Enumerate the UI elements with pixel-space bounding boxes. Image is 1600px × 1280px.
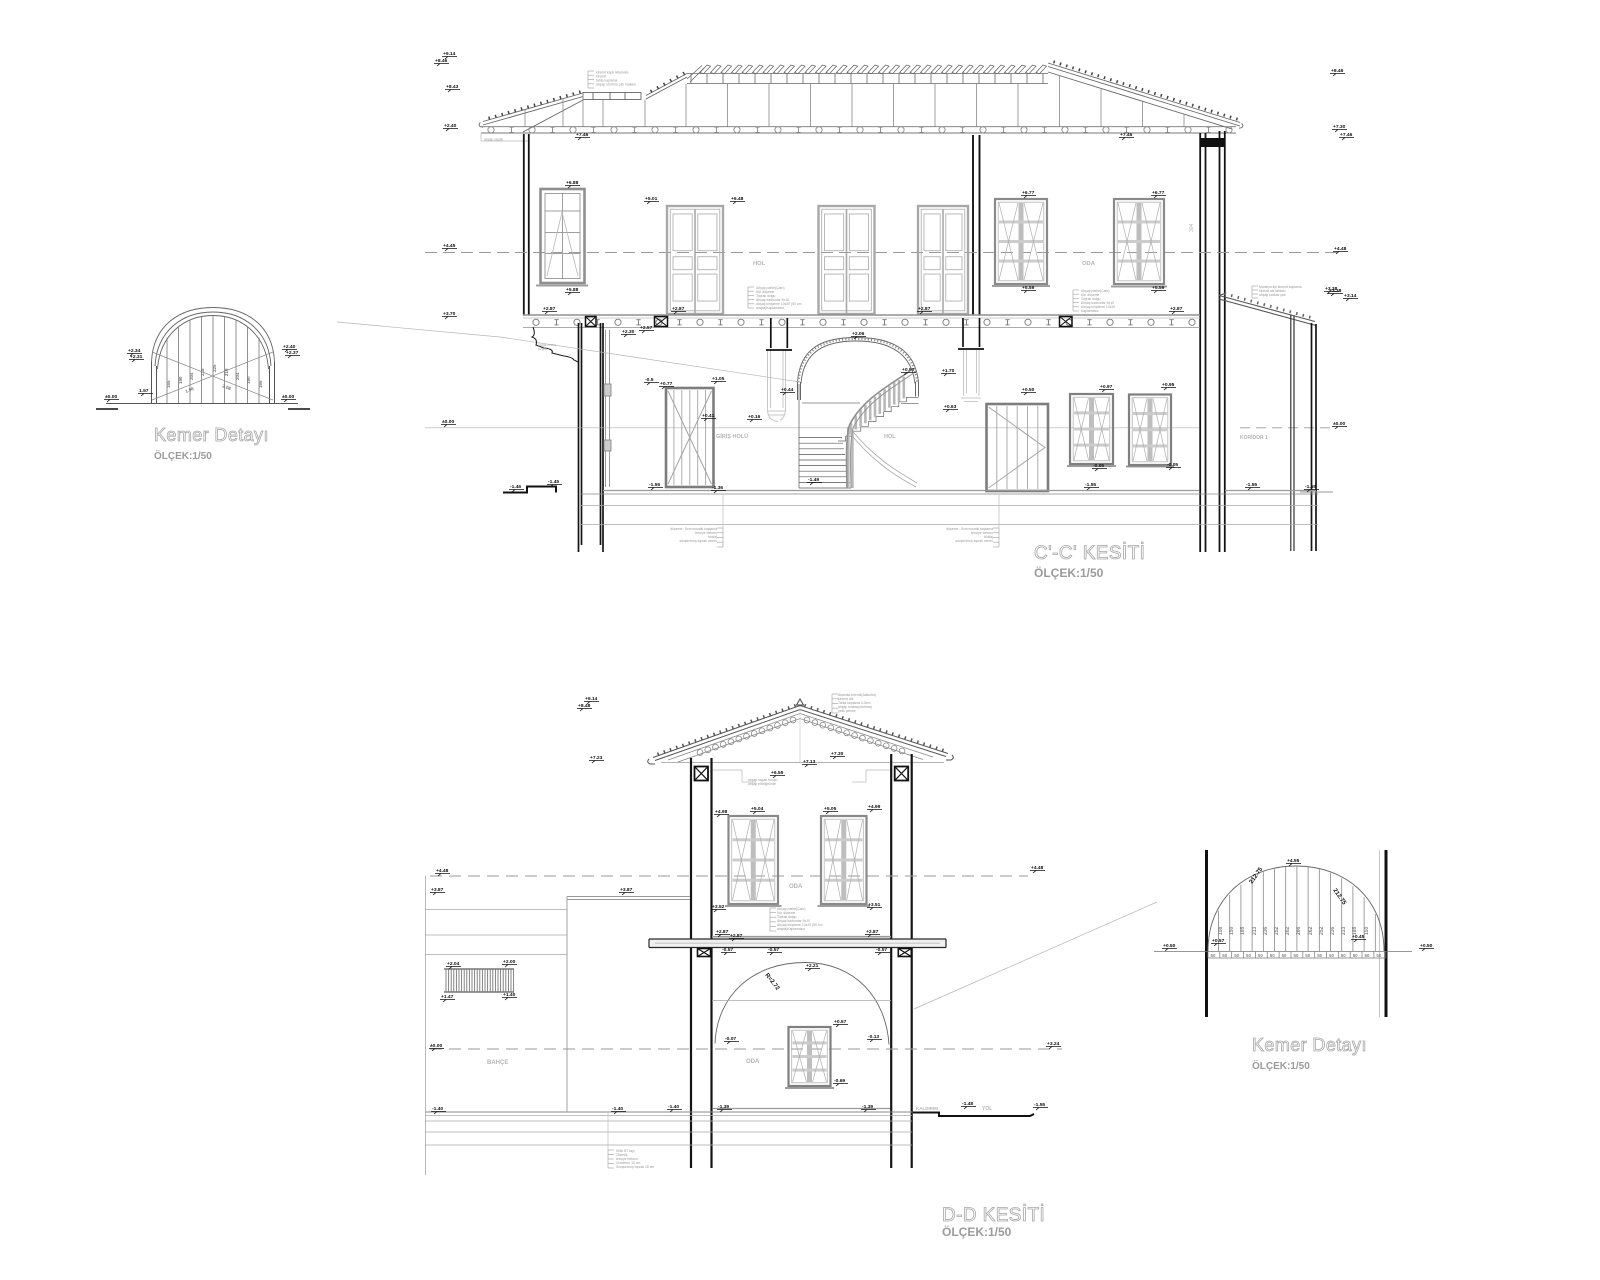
svg-text:108: 108 [1218,926,1224,935]
svg-text:185: 185 [1240,926,1246,935]
svg-text:165: 165 [166,380,171,388]
svg-text:sıkıştırılmış toprak zemin: sıkıştırılmış toprak zemin [680,539,718,543]
svg-text:50: 50 [1329,953,1334,958]
svg-text:190: 190 [246,376,251,384]
svg-text:190: 190 [178,376,183,384]
svg-text:252: 252 [1274,926,1280,935]
svg-text:262: 262 [1308,926,1314,935]
svg-text:ahşap oturtma çatı makası: ahşap oturtma çatı makası [596,83,636,87]
svg-text:50: 50 [1294,953,1299,958]
svg-text:50: 50 [1365,953,1370,958]
svg-text:213: 213 [1252,926,1258,935]
svg-text:204: 204 [189,372,194,380]
svg-text:Kemer Detayı: Kemer Detayı [154,425,269,445]
svg-text:165: 165 [258,380,263,388]
svg-text:50: 50 [1317,953,1322,958]
svg-text:KORİDOR 1: KORİDOR 1 [1240,434,1268,441]
svg-text:218: 218 [200,368,205,376]
svg-text:236: 236 [1263,926,1269,935]
svg-text:D-D KESİTİ: D-D KESİTİ [942,1205,1045,1226]
svg-text:ÖLÇEK:1/50: ÖLÇEK:1/50 [1034,565,1104,580]
svg-text:252: 252 [1319,926,1325,935]
svg-text:212.75: 212.75 [1331,888,1347,907]
svg-text:185: 185 [1352,926,1358,935]
svg-text:50: 50 [1222,953,1227,958]
svg-text:218: 218 [224,368,229,376]
svg-text:213: 213 [1341,926,1347,935]
svg-text:HOL: HOL [753,261,766,267]
svg-text:50: 50 [1305,953,1310,958]
svg-text:KALDIRIM: KALDIRIM [916,1106,938,1111]
svg-text:ahşap saçak: ahşap saçak [484,137,503,141]
svg-text:ODA: ODA [746,1059,760,1065]
svg-text:50: 50 [1211,953,1216,958]
svg-text:204: 204 [235,372,240,380]
svg-text:50: 50 [1234,953,1239,958]
svg-text:çizgisi: çizgisi [538,347,547,351]
svg-text:266: 266 [1296,926,1302,935]
svg-text:225: 225 [212,364,217,372]
svg-text:236: 236 [1330,926,1336,935]
svg-text:150: 150 [1364,926,1370,935]
svg-text:262: 262 [1285,926,1291,935]
svg-text:ODA: ODA [1082,261,1096,267]
svg-text:50: 50 [1282,953,1287,958]
svg-text:50: 50 [1270,953,1275,958]
svg-text:212.75: 212.75 [1249,866,1265,885]
svg-text:Sıkıştırılmış toprak 15 cm: Sıkıştırılmış toprak 15 cm [616,1165,654,1169]
svg-text:C'-C' KESİTİ: C'-C' KESİTİ [1034,543,1145,564]
svg-text:50: 50 [1258,953,1263,958]
svg-text:Kaplamasız: Kaplamasız [1081,309,1099,313]
svg-text:arayla)Kaplamasız: arayla)Kaplamasız [756,306,784,310]
svg-text:ODA: ODA [789,884,803,890]
svg-text:BAHÇE: BAHÇE [487,1060,508,1066]
svg-text:Kemer Detayı: Kemer Detayı [1252,1035,1367,1055]
svg-text:sıkıştırılmış toprak zemin: sıkıştırılmış toprak zemin [956,539,994,543]
svg-text:ahşap eliböğründe: ahşap eliböğründe [748,782,776,786]
svg-text:50: 50 [1376,953,1381,958]
svg-text:50: 50 [1353,953,1358,958]
svg-text:YOL: YOL [982,1106,992,1112]
svg-text:R=2.72: R=2.72 [763,973,780,993]
svg-text:ahşap karkas çatı: ahşap karkas çatı [1259,293,1286,297]
svg-text:50: 50 [1246,953,1251,958]
svg-text:ÖLÇEK:1/50: ÖLÇEK:1/50 [1252,1059,1310,1072]
svg-text:50: 50 [1341,953,1346,958]
svg-text:ÖLÇEK:1/50: ÖLÇEK:1/50 [154,449,212,462]
svg-text:HOL: HOL [884,434,896,440]
svg-text:GİRİŞ HOLÜ: GİRİŞ HOLÜ [716,433,748,440]
svg-text:ÖLÇEK:1/50: ÖLÇEK:1/50 [942,1224,1012,1239]
svg-text:2.08: 2.08 [222,383,232,391]
svg-text:arayla)Kaplamasız: arayla)Kaplamasız [777,927,805,931]
svg-text:çelik çekme: çelik çekme [838,709,856,713]
svg-text:304: 304 [1189,223,1195,232]
svg-text:150: 150 [1229,926,1235,935]
